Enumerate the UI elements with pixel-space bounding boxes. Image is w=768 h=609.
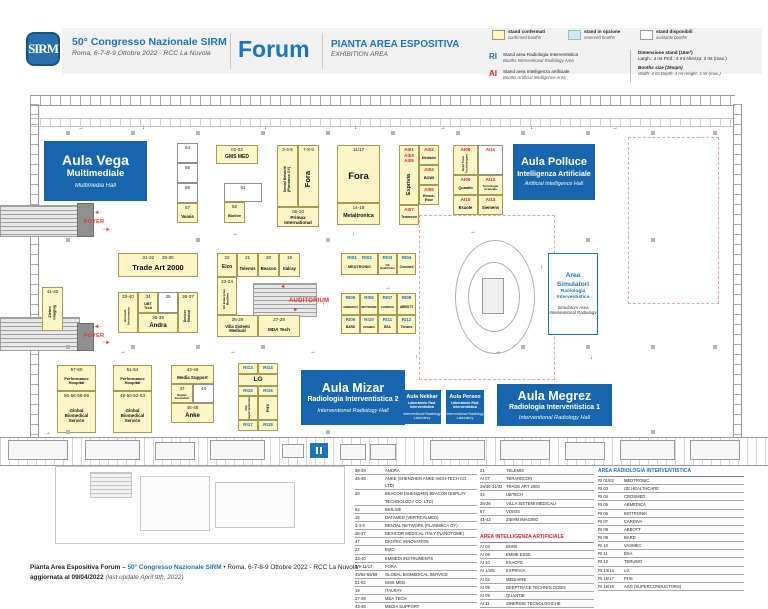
structural-column [196, 238, 200, 242]
exhibitor-row: RI 11BSA [598, 550, 744, 558]
plan-title: PIANTA AREA ESPOSITIVA [331, 39, 460, 50]
structural-column [131, 345, 135, 349]
structural-column [713, 131, 717, 135]
service-room [500, 440, 550, 460]
booth-ri10: RI10VASMEC [360, 315, 378, 334]
direction-arrow-icon: → [230, 349, 236, 355]
legend-ai-code: AI [489, 69, 497, 78]
venue-name: Forum [238, 36, 310, 63]
exhibitor-row: RI 15/17PHS [598, 575, 744, 583]
booth-49-50-52-53: 49-50-52-53GlobalBiomedicalService [113, 391, 152, 433]
foyer-label-upper: FOYER [84, 219, 104, 225]
structural-column [261, 131, 265, 135]
exhibitor-row: 20BEACON (SHENZHEN BEACON DISPLAY TECHNO… [355, 490, 477, 505]
simulators-subtitle: Radiologia Interventistica [549, 289, 597, 301]
structural-column [651, 131, 655, 135]
exhibitor-row: 36-37DEXICOR MEDICAL ITALY (NANOTOME) [355, 530, 477, 538]
booth-dimensions-en-title: Booths size (16sqm) [638, 65, 683, 71]
plan-subtitle: EXHIBITION AREA [331, 51, 388, 58]
service-room [8, 440, 68, 460]
direction-arrow-icon: ↓ [530, 125, 533, 131]
direction-arrow-icon: → [612, 125, 618, 131]
booth-lg: LG [238, 374, 278, 386]
booth-45-48: 45-48Anke [171, 403, 214, 423]
booth-34: 34UBTTech [138, 292, 158, 313]
foyer-direction-arrow-icon: ► [293, 308, 298, 314]
structural-column [66, 131, 70, 135]
exhibitor-row: RI 01/02MEDTRONIC [598, 477, 744, 485]
foyer-direction-arrow-icon: ◄┈ [94, 325, 103, 331]
exhibitor-row: 22EIZO [355, 546, 477, 554]
booth-7-8-9: 7-8-9Fora [298, 145, 319, 207]
exhibitor-row: RI 13/14LG [598, 567, 744, 575]
service-room [210, 440, 265, 460]
booth-ri12: RI12Terumo [397, 315, 416, 334]
hall-perseo: Aula PerseoLaboratorio Rad. Interventist… [446, 390, 484, 424]
direction-arrow-icon: ↑ [415, 355, 418, 361]
building-right-wall [733, 104, 742, 437]
legend-reserved-label: stand in opzione [584, 29, 620, 35]
footer-line2: aggiornata al 09/04/2022 (last update Ap… [30, 573, 358, 583]
structural-column [651, 238, 655, 242]
foyer-direction-arrow-icon: ┈► [102, 341, 111, 347]
sirm-logo-icon: SIRM [26, 32, 60, 66]
booth-ri05: RI05ABMEDICA [341, 293, 360, 315]
booth-06-10: 06-10PrimaxInternational [277, 207, 319, 227]
booth-ri09: RI09BARD [341, 315, 360, 334]
booth-23-24: 23-24O3 EnterpriseMediline [217, 277, 237, 315]
exhibitor-row: 67VOISIS [480, 508, 594, 516]
booth-35: 35 [158, 292, 178, 313]
exhibitor-row: 47DIGITEC INNOVATION [355, 538, 477, 546]
service-room [690, 440, 740, 460]
simulators-subtitle-en: Simulators Area Interventional Radiology [549, 305, 597, 316]
direction-arrow-icon: → [440, 125, 446, 131]
booth-ri16: RI16 [258, 386, 278, 396]
booth-01-02: 01-02GMS MED [216, 145, 258, 164]
service-room [620, 440, 675, 460]
structural-column [586, 131, 590, 135]
exhibitor-row: 3-4-5DENTAL NETWORK (PLANMECA OY) [355, 522, 477, 530]
direction-arrow-icon: → [45, 430, 51, 436]
building-top-wall-inner [30, 118, 735, 127]
exhibitor-row: 25-26VILLA SISTEMI MEDICALI [480, 500, 594, 508]
booth-ai06: AI06Emme-Esse [419, 185, 439, 205]
direction-arrow-icon: ↓ [590, 355, 593, 361]
structural-column [66, 238, 70, 242]
service-room [430, 440, 485, 460]
booth-dimensions-it-title: Dimensione stand (16m²) [638, 50, 693, 56]
exhibitor-row: 01-02GMS MED [355, 579, 477, 587]
booth-ai13: AI13Siemens [478, 195, 503, 215]
legend-reserved-label-en: reserved booths [584, 35, 615, 40]
direction-arrow-icon: → [120, 349, 126, 355]
legend-confirmed-label-en: confirmed booths [508, 35, 541, 40]
booth-66: 66 [177, 183, 198, 203]
exhibitor-row: RI 07CARDIVA [598, 518, 744, 526]
structural-column [651, 430, 655, 434]
hall-mizar: Aula MizarRadiologia Interventistica 2In… [301, 370, 405, 425]
booth-ri15: RI15 [238, 386, 258, 396]
hall-vega: Aula VegaMultimedialeMultimedia Hall [44, 141, 147, 201]
exhibitor-row: 45-48ANKE (SHENZHEN ANKE HIGH-TECH CO. L… [355, 475, 477, 490]
service-room [340, 444, 366, 460]
exhibitor-row: 16DATAMED (VERTICALMED) [355, 514, 477, 522]
hall-polluce: Aula PolluceIntelligenza ArtificialeArti… [513, 144, 595, 200]
booth-ri08: RI08ABBOTT [397, 293, 416, 315]
exhibitor-row: 27-28MDA TECH [355, 595, 477, 603]
exhibitor-row: RI 04CROSMED [598, 493, 744, 501]
booth-19: 19Italray [279, 253, 300, 277]
booth-ri07: RI07CARDIVA [378, 293, 397, 315]
booth-55-56-58-59: 55-56-58-59GlobalBiomedicalService [57, 391, 96, 433]
direction-arrow-icon: → [385, 285, 391, 291]
direction-arrow-icon: ↓ [264, 125, 267, 131]
booth-11-17: 11/17Fora [337, 145, 380, 203]
annex-room [140, 476, 210, 531]
direction-arrow-icon: ↓ [142, 125, 145, 131]
exhibitor-row: 7/9-11/17FORA [355, 563, 477, 571]
exhibitor-row: 33-40EMMEDI INSTRUMENTS [355, 555, 477, 563]
booth-61: 61 [224, 183, 262, 202]
structural-column [326, 430, 330, 434]
structural-column [66, 430, 70, 434]
direction-arrow-icon: ↓ [352, 231, 355, 237]
exhibitor-row: 21TELEMIS [480, 467, 594, 475]
structural-column [131, 131, 135, 135]
booth-ri11: RI11BSA [378, 315, 397, 334]
booth-25-26: 25-26Villa SistemiMedicali [217, 315, 258, 337]
legend-confirmed-label: stand confermati [508, 29, 545, 35]
direction-arrow-icon: ↑ [322, 302, 325, 308]
structural-column [521, 131, 525, 135]
booth-ai11: AI11 [478, 145, 503, 175]
hall-megrez: Aula MegrezRadiologia Interventistica 1I… [497, 384, 612, 426]
booth-44: 44 [193, 384, 214, 403]
legend-ri-code: RI [489, 52, 497, 61]
direction-arrow-icon: → [470, 229, 476, 235]
booth-3-4-5: 3-4-5Dental Network(Planmeca OY) [277, 145, 298, 207]
booth-ai01-ai03-ai05: AI01AI03AI05Exprivia [399, 145, 419, 205]
booth-ai02: AI02Mediaire [419, 145, 439, 165]
exhibitor-row: RI 10VASMEC [598, 542, 744, 550]
structural-column [391, 131, 395, 135]
exhibitor-list-general2-ai: 21TELEMISAI 07TERARECON29/30-31/32TRADE … [480, 467, 594, 609]
service-room [85, 440, 140, 460]
foyer-direction-arrow-icon: ◄┈ [94, 211, 103, 217]
foyer-label-lower: FOYER [84, 333, 104, 339]
booth-ai04: AI04BOWI [419, 165, 439, 185]
exhibitor-row: RI 09BARD [598, 534, 744, 542]
booth-57-60: 57-60PerformanceHospital [57, 365, 96, 391]
legend-divider [630, 50, 631, 83]
booth-64: 64 [177, 143, 198, 163]
congress-title: 50° Congresso Nazionale SIRM [72, 36, 227, 48]
exhibitor-row: 62BIOLIVE [355, 506, 477, 514]
booth-dimensions-en: Width: 4 mt Depth: 4 mt Height: 3 mt (ma… [638, 71, 721, 76]
structural-column [713, 345, 717, 349]
exhibitor-row: 43-46MEDIA SUPPORT [355, 603, 477, 609]
exhibitor-list-ri: AREA RADIOLOGIA INTERVENTISTICARI 01/02M… [598, 467, 744, 591]
booth-27-28: 27-28MDA Tech [258, 315, 300, 337]
congress-subtitle: Roma, 6-7-8-9 Ottobre 2022 - RCC La Nuvo… [72, 50, 211, 57]
structural-column [456, 131, 460, 135]
booth-ai07: AI07Terarecon [399, 205, 419, 225]
legend-ai-label: Stand area Intelligenza artificiale [503, 69, 569, 75]
exhibitor-row: RI 06BIOTRONIK [598, 510, 744, 518]
booth-ri13: RI13 [238, 363, 258, 374]
booth-31-32-29-30: 31-32 29-30Trade Art 2000 [118, 253, 198, 277]
exhibitor-row: AI 02MEDIAIRE [480, 576, 594, 584]
exhibitor-row: RI 08ABBOTT [598, 526, 744, 534]
service-room [370, 444, 396, 460]
building-left-wall [30, 104, 39, 437]
booth-ai09: AI09Quantib [453, 175, 478, 195]
exhibitor-row: RI 03GE HEALTHCARE [598, 485, 744, 493]
wc-icon [310, 443, 328, 458]
legend-ri-label-en: Booths Interventional Radiology Area [503, 58, 574, 63]
booth-22: 22Eizo [217, 253, 237, 277]
building-top-wall [30, 95, 735, 106]
booth-asg-superconductors: ASGsuperconductors [238, 396, 258, 420]
booth-33-40: 33-40EmmediInstruments [118, 292, 138, 333]
structural-column [261, 345, 265, 349]
foyer-direction-arrow-icon: ◄ [280, 285, 285, 291]
exhibitor-row: RI 16/18ASG (SUPERCONDUCTORS) [598, 583, 744, 591]
booth-ri18: RI18 [258, 420, 278, 431]
booth-62: 62Biolive [224, 202, 245, 223]
direction-arrow-icon: → [232, 231, 238, 237]
exhibitor-row: 41-42ZIEHM IMAGING [480, 516, 594, 524]
service-room [155, 442, 195, 460]
exhibitor-row: 34UBTECH [480, 491, 594, 499]
legend-available-label: stand disponibili [656, 29, 693, 35]
direction-arrow-icon: ↑ [540, 265, 543, 271]
floor-plan-page: SIRM 50° Congresso Nazionale SIRM Roma, … [0, 0, 768, 609]
exhibitor-row: RI 05ABMEDICA [598, 501, 744, 509]
structural-column [651, 345, 655, 349]
legend-available-swatch [640, 30, 653, 40]
ri-zone-outline [419, 215, 555, 380]
legend-ri-label: Stand area Radiologia Interventistica [503, 52, 578, 58]
booth-20: 20Beacon [258, 253, 279, 277]
booth-ai12: AI12TecnologieAvanzate [478, 175, 503, 195]
exhibitor-row: AI 06EMME ESSE [480, 551, 594, 559]
structural-column [586, 238, 590, 242]
exhibitor-row: AI 04BOWI [480, 543, 594, 551]
booth-ai10: AI10Esaote [453, 195, 478, 215]
structural-column [586, 345, 590, 349]
booth-ai08: AI08DeepTraceTechnologies [453, 145, 478, 175]
booth-14-18: 14-18Metaltronica [337, 203, 380, 225]
direction-arrow-icon: → [495, 349, 501, 355]
legend-confirmed-swatch [492, 30, 505, 40]
legend-reserved-swatch [568, 30, 581, 40]
structural-column [66, 345, 70, 349]
booth-phs: PHS [258, 396, 278, 420]
service-room [565, 442, 605, 460]
footer: Pianta Area Espositiva Forum – 50° Congr… [30, 563, 358, 582]
legend-ai-label-en: Booths Artificial Intelligence Area [503, 75, 566, 80]
exhibitor-row: AI 08DEEPTRACE TECHNOLOGIES [480, 584, 594, 592]
reserved-zone-outline [628, 137, 719, 304]
direction-arrow-icon: → [310, 349, 316, 355]
booth-ri01-ri02: RI01 RI02MEDTRONIC [341, 253, 378, 275]
booth-47: 47DigitecInnovation [171, 384, 193, 403]
booth-ri03: RI03GEHealthcare [378, 253, 397, 275]
structural-column [196, 345, 200, 349]
exhibitor-row: AI 10ESAOTE [480, 559, 594, 567]
legend-available-label-en: available booths [656, 35, 687, 40]
exhibitor-row: 29/30-31/32TRADE ART 2000 [480, 483, 594, 491]
simulators-title: Area Simulatori [549, 272, 597, 288]
list-section-title: AREA INTELLIGENZA ARTIFICIALE [480, 533, 594, 543]
structural-column [521, 345, 525, 349]
booth-dimensions-it: Largh.: 4 mt Prof.: 4 mt Altezza: 3 mt (… [638, 56, 727, 62]
service-room [282, 444, 304, 458]
foyer-direction-arrow-icon: ┈► [102, 228, 111, 234]
booth-36-37: 36-37DexicorMedical [178, 292, 198, 333]
booth-38-39: 38-39Andra [138, 313, 178, 333]
direction-arrow-icon: → [78, 125, 84, 131]
exhibitor-row: AI 09QUANTIB [480, 592, 594, 600]
exhibitor-row: 19ITALRAY [355, 587, 477, 595]
booth-21: 21Telemis [237, 253, 258, 277]
exhibitor-list-general: 38-39ANDRA45-48ANKE (SHENZHEN ANKE HIGH-… [355, 467, 477, 609]
structural-column [196, 131, 200, 135]
annex-stairs [90, 472, 132, 498]
booth-ri14: RI14 [258, 363, 278, 374]
simulators-area-box: Area Simulatori Radiologia Interventisti… [548, 253, 598, 335]
exhibitor-row: 49/52-55/59GLOBAL BIOMEDICAL SERVICE [355, 571, 477, 579]
structural-column [326, 238, 330, 242]
exhibitor-row: AI 07TERARECON [480, 475, 594, 483]
booth-43-46: 43-46Media Support [171, 365, 214, 384]
direction-arrow-icon: ↓ [354, 125, 357, 131]
list-section-title: AREA RADIOLOGIA INTERVENTISTICA [598, 467, 744, 477]
annex-room [215, 482, 295, 528]
escalator-upper [0, 205, 79, 237]
footer-line1: Pianta Area Espositiva Forum – 50° Congr… [30, 563, 358, 573]
booth-41-42: 41-42ZiehmImaging [42, 287, 63, 331]
exhibitor-row: RI 12TERUMO [598, 558, 744, 566]
booth-ri06: RI06BIOTRONIK [360, 293, 378, 315]
header-divider [322, 33, 323, 69]
exhibitor-row: AI 1/3/5EXPRIVIA [480, 567, 594, 575]
booth-67: 67Voisis [177, 203, 198, 223]
structural-column [326, 131, 330, 135]
booth-ri17: RI17 [238, 420, 258, 431]
booth-51-54: 51-54PerformanceHospital [113, 365, 152, 391]
booth-65: 65 [177, 163, 198, 183]
exhibitor-row: 38-39ANDRA [355, 467, 477, 475]
exhibitor-row: AI 11SINERGIE TECNOLOGICHE [480, 600, 594, 608]
hall-nekkar: Aula NekkarLaboratorio Rad. Interventist… [403, 390, 441, 424]
header-divider [230, 33, 231, 69]
booth-ri04: RI04Crosmed [397, 253, 416, 275]
